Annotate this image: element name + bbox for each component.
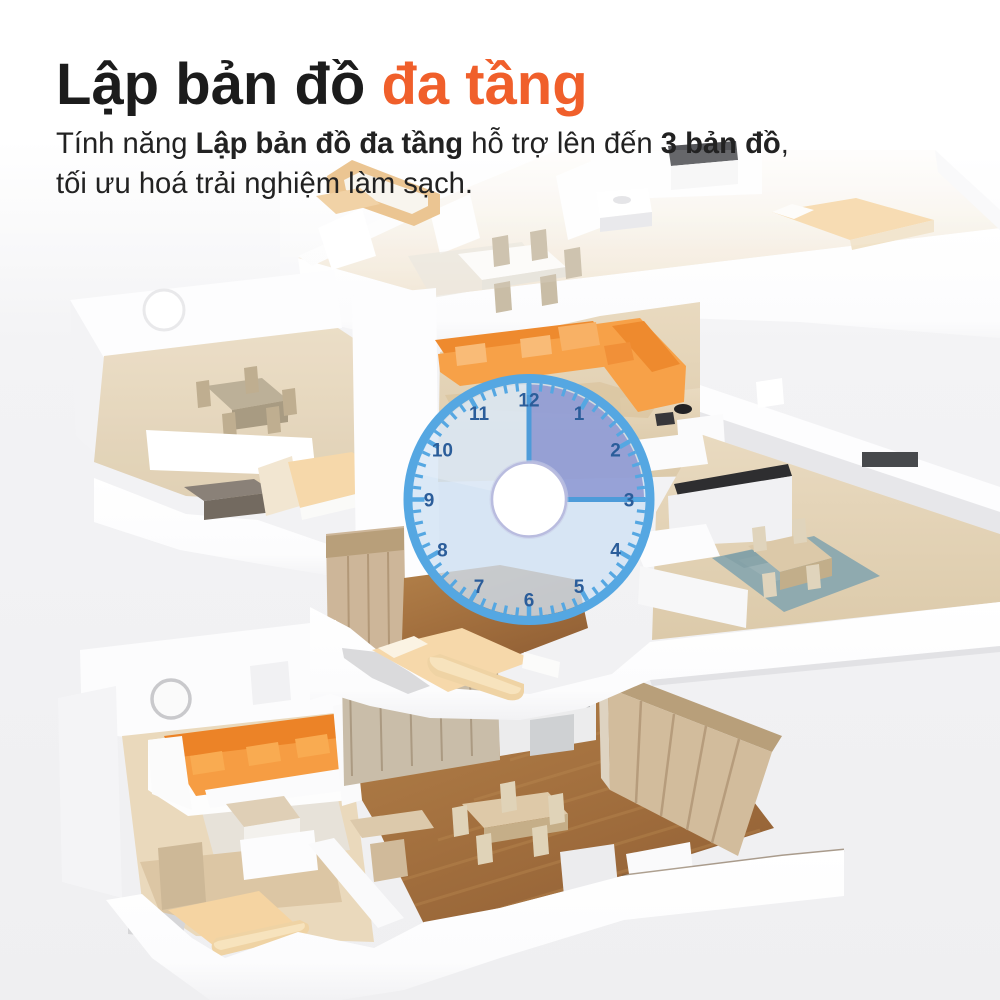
svg-text:12: 12 xyxy=(518,391,539,412)
svg-text:Lập bản đồ đa tầng: Lập bản đồ đa tầng xyxy=(56,52,588,117)
svg-text:4: 4 xyxy=(610,541,621,562)
svg-text:10: 10 xyxy=(432,441,453,462)
svg-text:tối ưu hoá trải nghiệm làm sạc: tối ưu hoá trải nghiệm làm sạch. xyxy=(56,168,473,200)
svg-text:9: 9 xyxy=(424,491,435,512)
svg-text:Tính năng Lập bản đồ đa tầng h: Tính năng Lập bản đồ đa tầng hỗ trợ lên … xyxy=(56,127,789,160)
svg-text:3: 3 xyxy=(624,491,635,512)
svg-text:2: 2 xyxy=(610,441,621,462)
svg-text:7: 7 xyxy=(474,577,485,598)
svg-text:8: 8 xyxy=(437,541,448,562)
svg-text:5: 5 xyxy=(574,577,585,598)
svg-text:11: 11 xyxy=(469,404,490,425)
svg-text:6: 6 xyxy=(524,591,535,612)
svg-text:1: 1 xyxy=(574,404,585,425)
